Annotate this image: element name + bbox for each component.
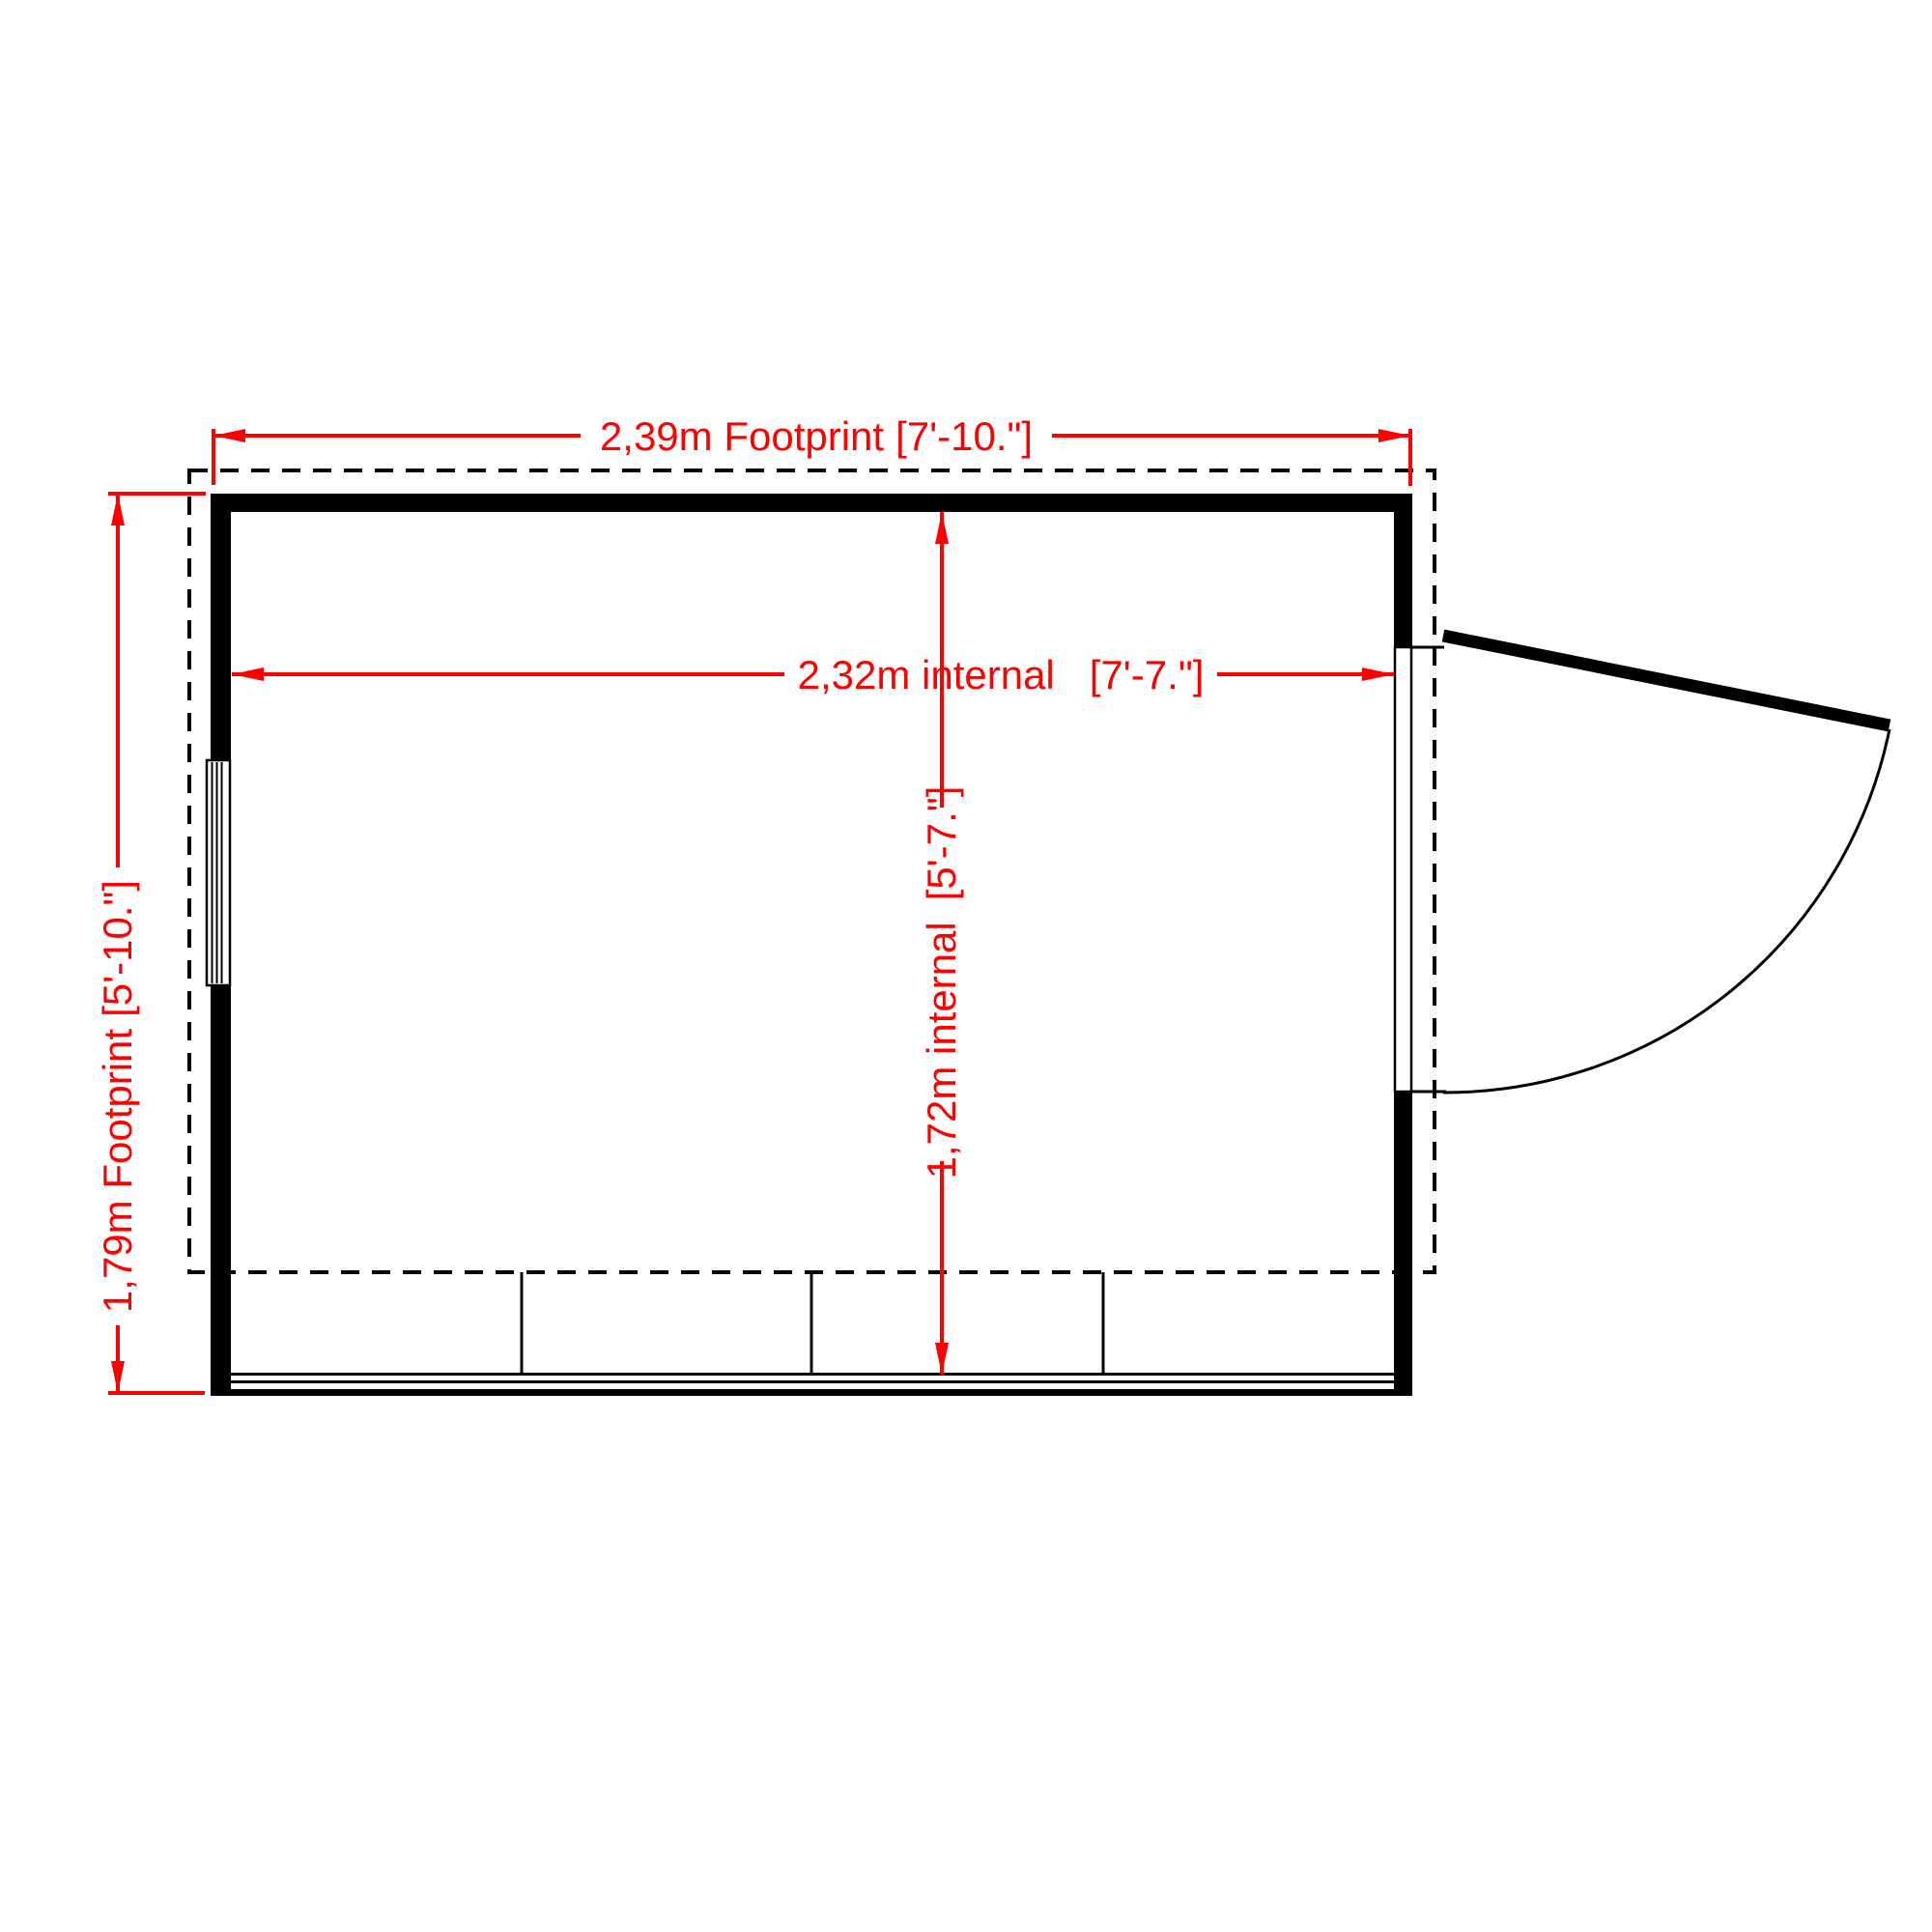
right-wall-lower <box>1394 1092 1412 1396</box>
arrowhead-down <box>935 1343 949 1375</box>
footprint-width-metric: 2,39m Footprint <box>600 413 884 459</box>
arrowhead-up <box>935 512 949 544</box>
internal-depth-label: 1,72m internal[5'-7."] <box>922 786 962 1179</box>
right-wall-upper <box>1394 494 1412 647</box>
arrowhead-right <box>1362 668 1394 681</box>
window <box>207 760 230 985</box>
footprint-width-label: 2,39m Footprint[7'-10."] <box>600 416 1033 457</box>
bottom-panel-dividers <box>522 1272 1103 1373</box>
arrowhead-down <box>111 1361 125 1393</box>
arrowhead-right <box>1378 429 1410 442</box>
roof-overhang-dashed-outline <box>189 470 1435 1272</box>
arrowhead-left <box>232 668 264 681</box>
door-jamb <box>1395 647 1411 1092</box>
left-wall-upper <box>211 494 231 760</box>
floor-plan-page: 2,39m Footprint[7'-10."] 2,32m internal[… <box>0 0 1932 1932</box>
door-leaf <box>1443 636 1889 725</box>
floor-plan-canvas <box>0 0 1932 1932</box>
footprint-depth-imperial: [5'-10."] <box>98 880 138 1017</box>
internal-width-metric: 2,32m internal <box>798 652 1055 697</box>
footprint-depth-label: 1,79m Footprint[5'-10."] <box>98 880 138 1313</box>
top-wall <box>211 494 1412 512</box>
internal-width-imperial: [7'-7."] <box>1090 655 1205 696</box>
internal-depth-metric: 1,72m internal <box>919 922 964 1179</box>
internal-depth-imperial: [5'-7."] <box>922 786 962 901</box>
bottom-wall-line-1 <box>211 1373 1412 1376</box>
door <box>1395 636 1889 1093</box>
internal-width-label: 2,32m internal[7'-7."] <box>798 655 1205 696</box>
bottom-wall-line-2 <box>211 1380 1412 1383</box>
footprint-depth-metric: 1,79m Footprint <box>95 1029 140 1313</box>
arrowhead-left <box>213 429 245 442</box>
walls <box>211 494 1412 1396</box>
window-frame <box>207 760 230 985</box>
bottom-wall-line-3 <box>211 1389 1412 1396</box>
door-swing-arc <box>1443 729 1889 1093</box>
left-wall-lower <box>211 985 231 1396</box>
footprint-width-imperial: [7'-10."] <box>895 416 1033 457</box>
arrowhead-up <box>111 494 125 526</box>
